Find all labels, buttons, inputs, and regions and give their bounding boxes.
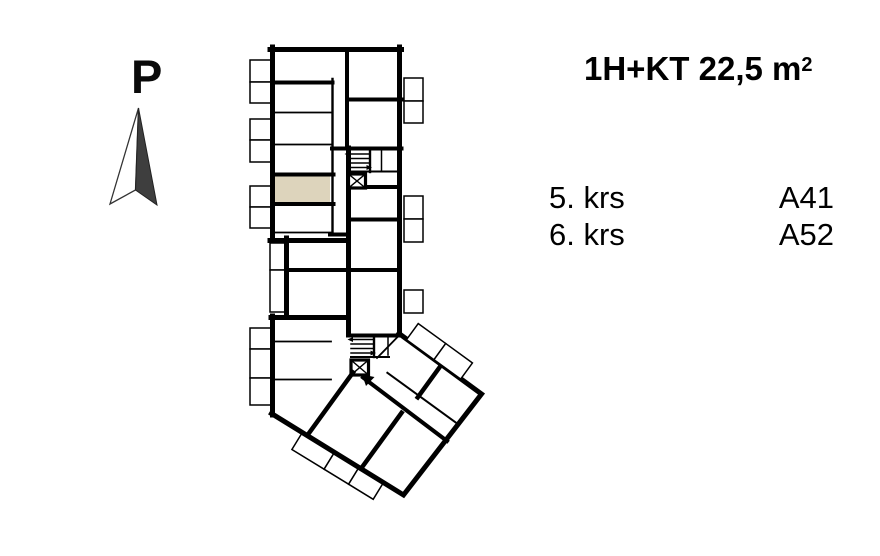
elevator-upper-icon bbox=[349, 174, 366, 188]
unit-title: 1H+KT 22,5 m2 bbox=[584, 51, 812, 87]
apartment-number: A41 bbox=[779, 179, 834, 216]
highlighted-unit bbox=[275, 177, 330, 203]
unit-type-area: 1H+KT 22,5 m bbox=[584, 50, 801, 87]
building-outline bbox=[250, 47, 492, 500]
floor-label: 6. krs bbox=[549, 216, 625, 253]
stairs-upper-icon bbox=[345, 150, 400, 172]
floor-label: 5. krs bbox=[549, 179, 625, 216]
floor-list: 5. krs A41 6. krs A52 bbox=[549, 179, 834, 253]
floor-row: 6. krs A52 bbox=[549, 216, 834, 253]
stairs-lower-icon bbox=[348, 336, 399, 358]
apartment-location-diagram: P bbox=[0, 0, 880, 556]
apartment-number: A52 bbox=[779, 216, 834, 253]
area-superscript: 2 bbox=[801, 54, 812, 76]
north-arrow-icon bbox=[110, 108, 157, 205]
floor-row: 5. krs A41 bbox=[549, 179, 834, 216]
